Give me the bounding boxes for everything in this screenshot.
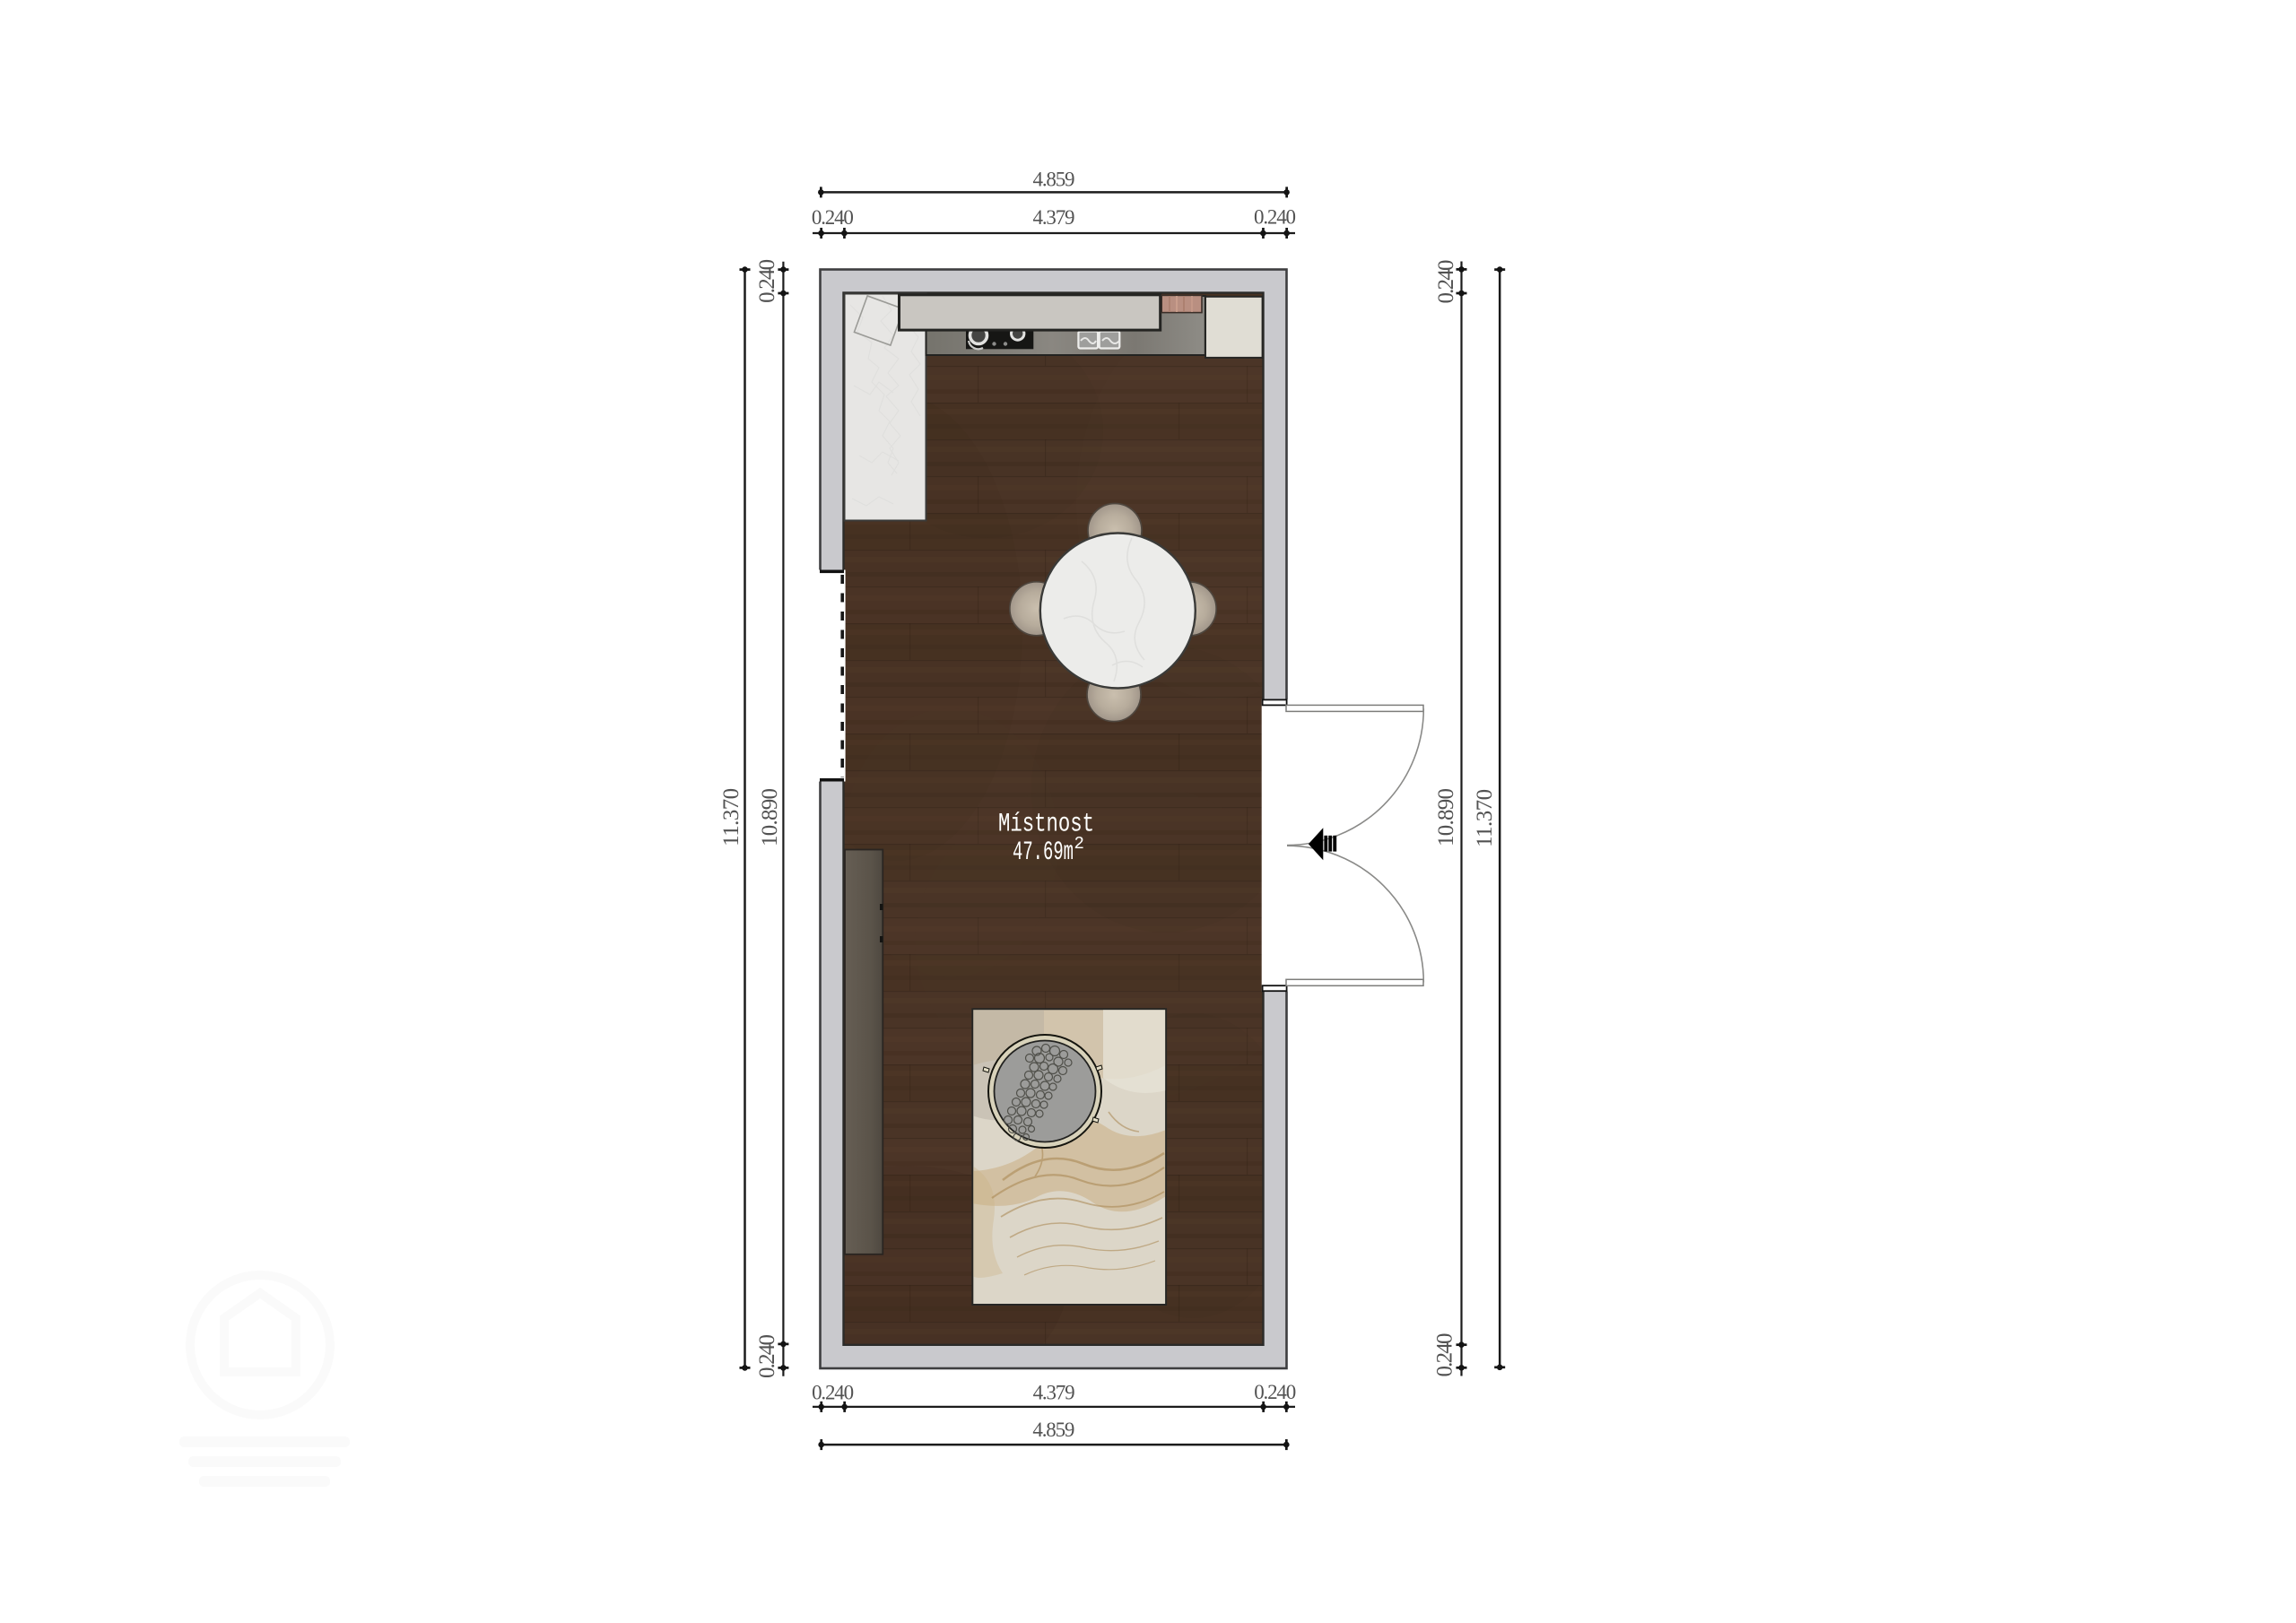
svg-text:4.859: 4.859 xyxy=(1032,1419,1074,1441)
svg-text:0.240: 0.240 xyxy=(755,1334,779,1378)
svg-text:0.240: 0.240 xyxy=(1433,1333,1457,1377)
svg-text:0.240: 0.240 xyxy=(812,1382,854,1404)
svg-text:10.890: 10.890 xyxy=(758,788,782,846)
svg-text:0.240: 0.240 xyxy=(1254,206,1296,229)
svg-text:2: 2 xyxy=(1074,834,1084,854)
svg-text:0.240: 0.240 xyxy=(1254,1381,1296,1403)
svg-text:10.890: 10.890 xyxy=(1434,788,1458,846)
svg-text:4.379: 4.379 xyxy=(1033,206,1075,229)
svg-text:47.69m: 47.69m xyxy=(1013,838,1074,868)
svg-text:0.240: 0.240 xyxy=(1434,260,1458,304)
svg-text:0.240: 0.240 xyxy=(755,259,779,303)
svg-text:11.370: 11.370 xyxy=(719,788,744,846)
svg-text:4.379: 4.379 xyxy=(1033,1382,1075,1404)
svg-text:4.859: 4.859 xyxy=(1033,169,1075,191)
svg-text:11.370: 11.370 xyxy=(1473,789,1497,847)
svg-text:0.240: 0.240 xyxy=(812,206,854,229)
